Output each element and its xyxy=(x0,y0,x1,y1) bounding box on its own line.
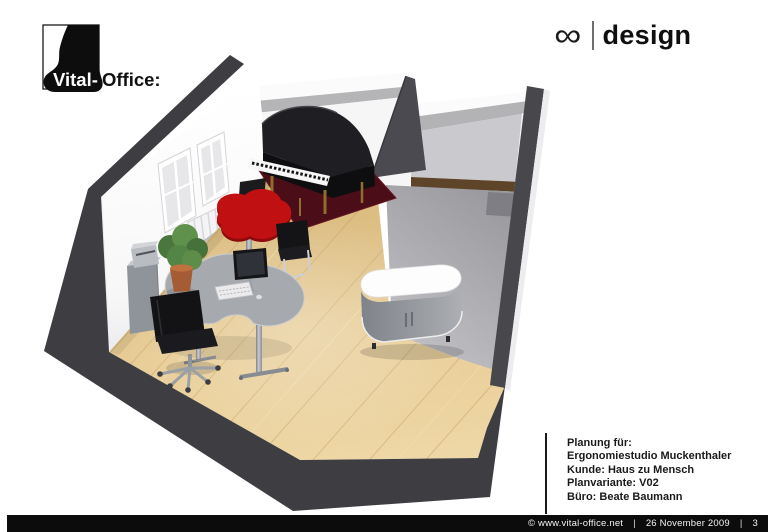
footer-separator: | xyxy=(633,518,636,529)
window xyxy=(197,132,229,206)
plan-line-title: Planung für: xyxy=(567,437,731,450)
footer-date: 26 November 2009 xyxy=(646,518,730,529)
footer-bar: © www.vital-office.net | 26 November 200… xyxy=(7,515,768,532)
footer-copyright: © www.vital-office.net xyxy=(528,518,623,529)
plan-line-studio: Ergonomiestudio Muckenthaler xyxy=(567,450,731,463)
footer-separator: | xyxy=(740,518,743,529)
footer-page-number: 3 xyxy=(753,518,758,529)
design-brand-lockup: ∞ design xyxy=(556,20,691,50)
plan-line-customer: Kunde: Haus zu Mensch xyxy=(567,464,731,477)
infinity-icon: ∞ xyxy=(554,20,581,50)
plan-info: Planung für: Ergonomiestudio Muckenthale… xyxy=(567,437,731,504)
plan-line-variant: Planvariante: V02 xyxy=(567,477,731,490)
brand-divider xyxy=(592,21,594,50)
plan-line-office: Büro: Beate Baumann xyxy=(567,491,731,504)
logo-text-vital: Vital- xyxy=(53,69,98,90)
printer xyxy=(131,245,159,268)
logo-text-office: Office: xyxy=(102,69,161,90)
monitor xyxy=(233,248,268,280)
mouse xyxy=(256,295,262,299)
vital-office-logo: Vital- Office: xyxy=(39,20,209,98)
design-wordmark: design xyxy=(603,20,692,50)
plan-info-rule xyxy=(545,433,547,514)
slide-page: { "logo": { "white_part": "Vital-", "dar… xyxy=(0,0,768,532)
